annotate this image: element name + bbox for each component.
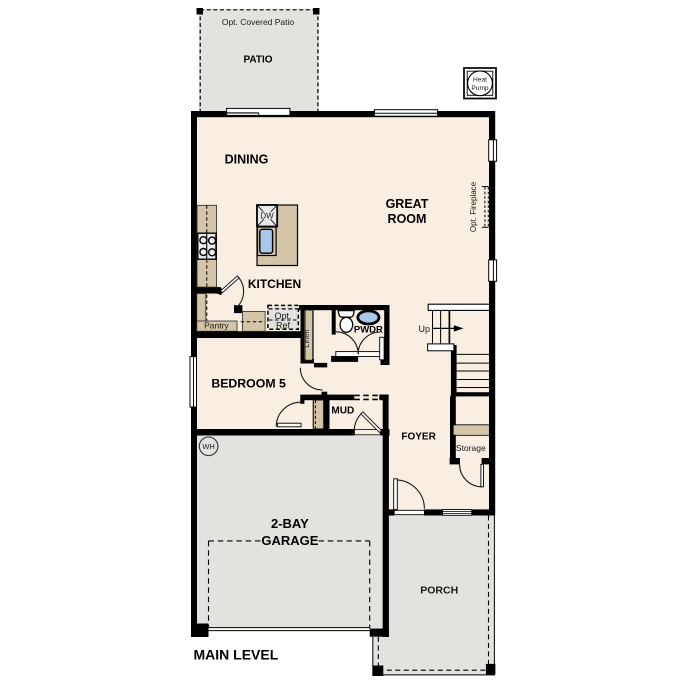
svg-text:2-BAY: 2-BAY (271, 516, 309, 531)
svg-text:KITCHEN: KITCHEN (248, 277, 301, 291)
svg-text:PORCH: PORCH (420, 585, 458, 597)
svg-text:FOYER: FOYER (401, 432, 436, 443)
svg-text:MAIN LEVEL: MAIN LEVEL (194, 646, 279, 662)
svg-text:GARAGE: GARAGE (261, 533, 318, 548)
svg-text:Up: Up (418, 324, 430, 334)
svg-text:BEDROOM 5: BEDROOM 5 (211, 376, 286, 390)
svg-text:Pantry: Pantry (204, 321, 229, 331)
svg-text:WH: WH (202, 442, 215, 451)
svg-text:Opt. Fireplace: Opt. Fireplace (469, 181, 478, 232)
svg-text:MUD: MUD (331, 406, 354, 417)
svg-text:GREAT: GREAT (386, 197, 429, 211)
svg-text:Opt. Covered Patio: Opt. Covered Patio (222, 17, 295, 27)
svg-text:PWDR: PWDR (354, 324, 383, 335)
svg-text:Pump: Pump (471, 85, 489, 92)
svg-text:ROOM: ROOM (388, 212, 427, 226)
svg-text:Ref: Ref (276, 320, 291, 330)
svg-text:DW: DW (260, 212, 274, 221)
svg-text:DINING: DINING (225, 152, 269, 166)
svg-text:Linen: Linen (302, 329, 311, 347)
svg-text:PATIO: PATIO (243, 55, 272, 66)
svg-text:Storage: Storage (456, 443, 486, 453)
svg-text:Heat: Heat (473, 77, 487, 84)
